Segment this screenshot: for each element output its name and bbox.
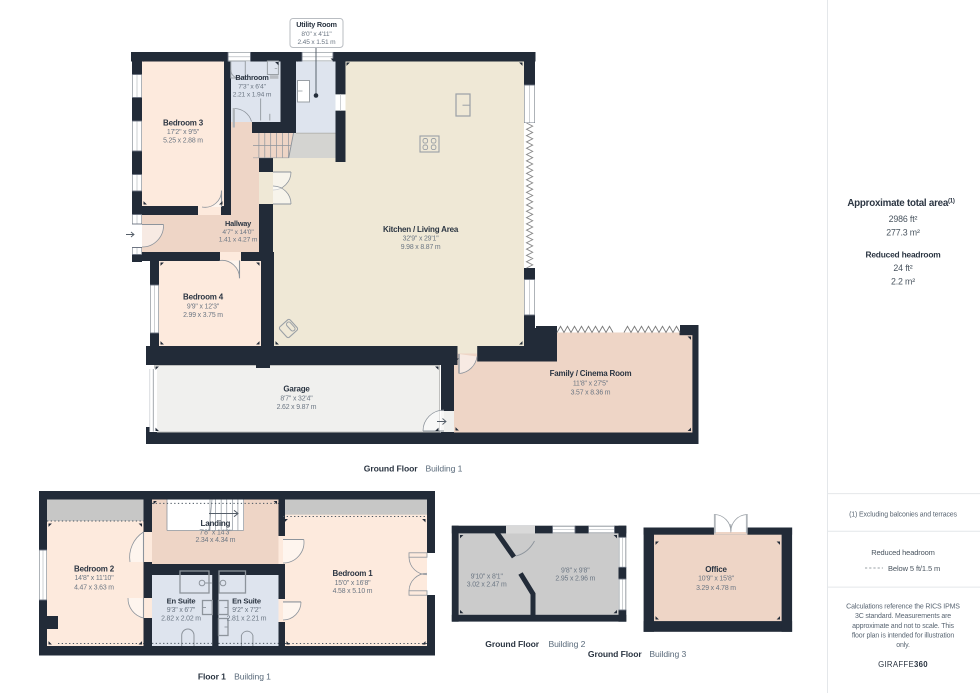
svg-text:14'8" x 11'10": 14'8" x 11'10" xyxy=(74,575,114,582)
svg-text:Hallway: Hallway xyxy=(225,219,252,228)
svg-text:9'10" x 8'1": 9'10" x 8'1" xyxy=(471,574,504,581)
svg-text:9.98 x 8.87 m: 9.98 x 8.87 m xyxy=(401,244,441,251)
svg-text:3.29 x 4.78 m: 3.29 x 4.78 m xyxy=(696,585,736,592)
svg-text:Reduced headroom: Reduced headroom xyxy=(866,250,941,260)
svg-text:Bedroom 4: Bedroom 4 xyxy=(183,293,224,302)
svg-text:3.57 x 8.36 m: 3.57 x 8.36 m xyxy=(571,389,611,396)
svg-text:2.62 x 9.87 m: 2.62 x 9.87 m xyxy=(277,404,317,411)
svg-text:Floor 1: Floor 1 xyxy=(198,671,226,681)
svg-text:floor plan is intended for ill: floor plan is intended for illustration xyxy=(852,632,955,639)
svg-text:8'0" x 4'11": 8'0" x 4'11" xyxy=(301,31,332,38)
svg-text:Building 2: Building 2 xyxy=(549,639,586,649)
svg-text:5.25 x 2.88 m: 5.25 x 2.88 m xyxy=(163,137,203,144)
svg-text:3.02 x 2.47 m: 3.02 x 2.47 m xyxy=(467,582,507,589)
svg-text:Ground Floor: Ground Floor xyxy=(588,649,642,659)
svg-text:Bathroom: Bathroom xyxy=(235,73,269,82)
svg-text:Landing: Landing xyxy=(201,519,231,528)
svg-text:2.34 x 4.34 m: 2.34 x 4.34 m xyxy=(195,537,235,544)
svg-text:(1) Excluding balconies and te: (1) Excluding balconies and terraces xyxy=(849,511,957,518)
svg-text:9'2" x 7'2": 9'2" x 7'2" xyxy=(232,607,261,614)
svg-text:4'7" x 14'0": 4'7" x 14'0" xyxy=(222,229,254,236)
svg-text:Kitchen / Living Area: Kitchen / Living Area xyxy=(383,225,459,234)
svg-text:Ground Floor: Ground Floor xyxy=(485,639,539,649)
svg-text:Bedroom 3: Bedroom 3 xyxy=(163,119,204,128)
svg-text:approximate and not to scale.: approximate and not to scale. This xyxy=(852,623,954,630)
svg-text:17'2" x 9'5": 17'2" x 9'5" xyxy=(167,129,200,136)
svg-text:Building 3: Building 3 xyxy=(649,649,686,659)
svg-text:Reduced headroom: Reduced headroom xyxy=(871,548,934,557)
svg-text:Building 1: Building 1 xyxy=(426,464,463,474)
svg-text:4.47 x 3.63 m: 4.47 x 3.63 m xyxy=(74,584,114,591)
svg-text:2.95 x 2.96 m: 2.95 x 2.96 m xyxy=(555,576,595,583)
svg-text:only.: only. xyxy=(896,642,910,649)
svg-text:Ground Floor: Ground Floor xyxy=(364,464,418,474)
svg-text:32'9" x 29'1": 32'9" x 29'1" xyxy=(403,236,440,243)
svg-text:Building 1: Building 1 xyxy=(234,671,271,681)
svg-text:7'8" x 14'3": 7'8" x 14'3" xyxy=(199,529,232,536)
svg-text:Bedroom 1: Bedroom 1 xyxy=(333,569,374,578)
svg-text:1.41 x 4.27 m: 1.41 x 4.27 m xyxy=(219,237,258,244)
svg-text:Family / Cinema Room: Family / Cinema Room xyxy=(550,369,632,378)
svg-text:9'3" x 6'7": 9'3" x 6'7" xyxy=(167,607,196,614)
svg-text:4.58 x 5.10 m: 4.58 x 5.10 m xyxy=(333,588,373,595)
svg-text:8'7" x 32'4": 8'7" x 32'4" xyxy=(280,396,313,403)
svg-text:15'0" x 16'8": 15'0" x 16'8" xyxy=(335,580,372,587)
svg-text:En Suite: En Suite xyxy=(232,597,261,606)
svg-text:2.2 m²: 2.2 m² xyxy=(891,277,915,287)
svg-text:2.81 x 2.21 m: 2.81 x 2.21 m xyxy=(227,615,267,622)
svg-text:277.3 m²: 277.3 m² xyxy=(886,228,920,238)
svg-text:Bedroom 2: Bedroom 2 xyxy=(74,565,115,574)
svg-text:2.45 x 1.51 m: 2.45 x 1.51 m xyxy=(297,39,336,46)
svg-text:En Suite: En Suite xyxy=(167,597,196,606)
svg-text:9'9" x 12'3": 9'9" x 12'3" xyxy=(187,304,220,311)
svg-text:2.21 x 1.94 m: 2.21 x 1.94 m xyxy=(233,91,272,98)
svg-text:Calculations reference the RIC: Calculations reference the RICS IPMS xyxy=(846,604,960,611)
svg-text:Approximate total area(1): Approximate total area(1) xyxy=(847,198,955,209)
svg-text:2.82 x 2.02 m: 2.82 x 2.02 m xyxy=(161,615,201,622)
svg-text:11'8" x 27'5": 11'8" x 27'5" xyxy=(573,381,609,388)
svg-text:10'9" x 15'8": 10'9" x 15'8" xyxy=(698,576,735,583)
svg-text:Utility Room: Utility Room xyxy=(296,20,337,29)
svg-text:3C standard. Measurements are: 3C standard. Measurements are xyxy=(855,613,951,620)
svg-text:Garage: Garage xyxy=(283,385,310,394)
svg-text:2.99 x 3.75 m: 2.99 x 3.75 m xyxy=(183,312,223,319)
svg-text:GIRAFFE360: GIRAFFE360 xyxy=(878,660,928,669)
svg-text:Office: Office xyxy=(705,565,727,574)
svg-text:7'3" x 6'4": 7'3" x 6'4" xyxy=(238,83,266,90)
svg-text:24 ft²: 24 ft² xyxy=(893,263,912,273)
svg-text:Below 5 ft/1.5 m: Below 5 ft/1.5 m xyxy=(888,564,940,573)
svg-text:2986 ft²: 2986 ft² xyxy=(889,214,918,224)
svg-text:9'8" x 9'8": 9'8" x 9'8" xyxy=(561,568,590,575)
